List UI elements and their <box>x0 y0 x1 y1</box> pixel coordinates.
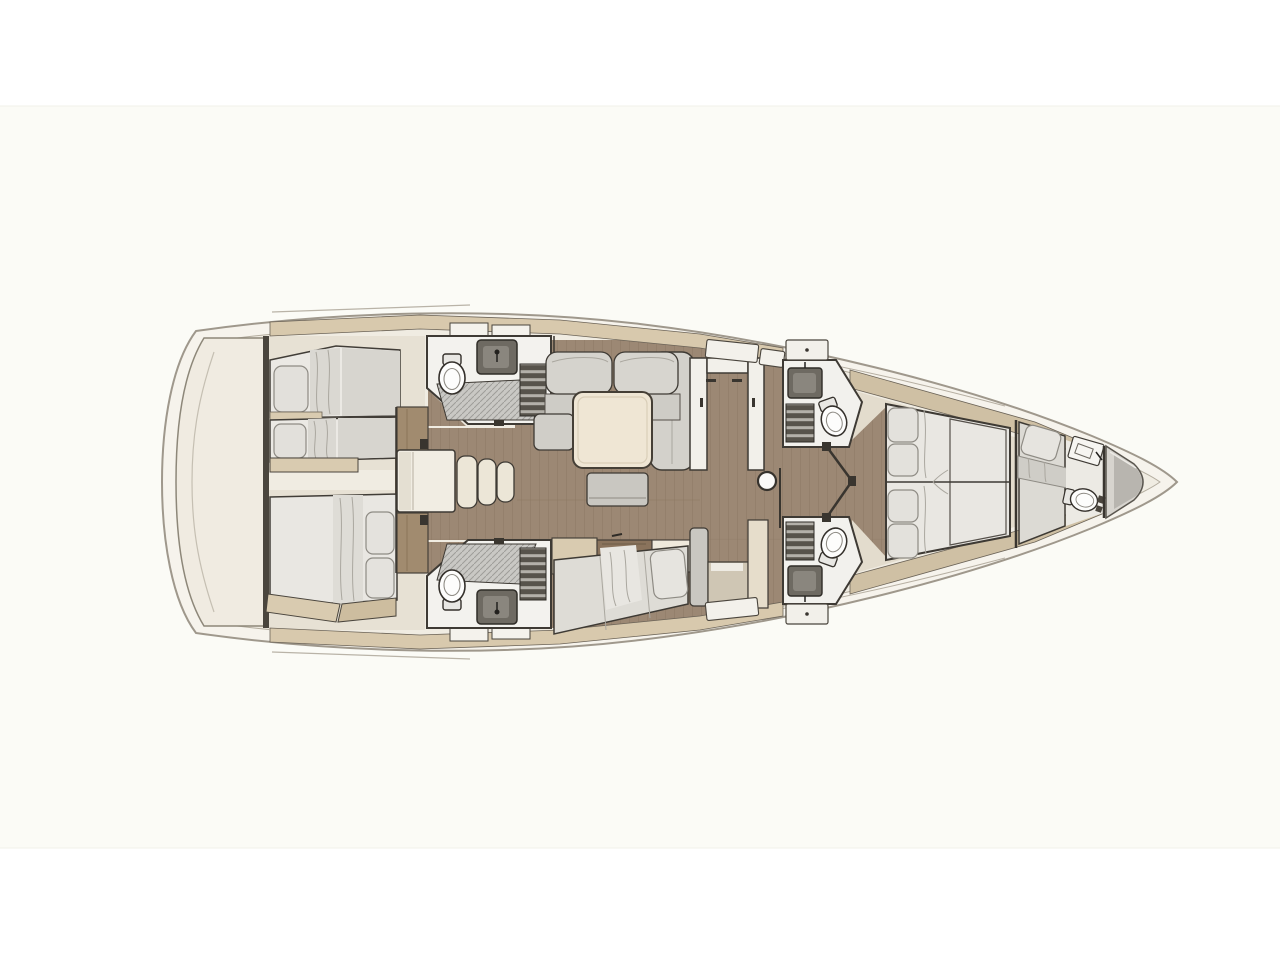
landing-shade <box>399 452 411 510</box>
galley-handle-4 <box>752 398 755 407</box>
companionway-step-3 <box>497 462 514 502</box>
floor-plan-page <box>0 0 1280 960</box>
owners-cabin <box>886 404 1016 560</box>
platform-surface <box>176 338 264 626</box>
door-hinge-bottom <box>822 513 831 522</box>
transom-bulkhead <box>263 336 269 628</box>
door-hinge-top <box>822 442 831 451</box>
toilet-icon <box>439 570 465 610</box>
floor-plan-canvas <box>0 0 1280 960</box>
door-post-bottom <box>420 515 428 525</box>
berth-2-pillow <box>274 424 306 458</box>
toilet-icon <box>439 354 465 394</box>
sofa-end-seat <box>534 414 574 450</box>
berth-1-duvet <box>310 348 340 416</box>
salon-table <box>573 392 652 468</box>
berth-foot-shelf <box>270 458 358 472</box>
sink-bowl <box>483 346 509 368</box>
aft-head-starboard <box>427 538 551 628</box>
galley-handle-1 <box>706 379 716 382</box>
sink-bowl <box>793 571 816 591</box>
hanging-locker <box>690 528 708 606</box>
double-bed-pillow-1 <box>366 512 394 554</box>
owner-pillow-2 <box>888 444 918 476</box>
chart-counter-top <box>711 563 743 571</box>
berth-1-pillow <box>274 366 308 412</box>
double-bed-duvet <box>333 495 363 604</box>
settee-blanket <box>600 545 642 610</box>
galley-counter-left <box>690 358 707 470</box>
locker-knob <box>805 612 809 616</box>
settee-pillow <box>650 548 689 599</box>
slatted-locker <box>786 522 814 560</box>
galley-counter-right <box>748 358 764 470</box>
sofa-back-cushion-1 <box>546 352 612 394</box>
berth-1-foot <box>342 348 400 416</box>
tall-cabinet <box>748 520 768 608</box>
companionway-step-2 <box>478 459 496 505</box>
double-bed-pillow-2 <box>366 558 394 598</box>
sofa-back-cushion-2 <box>614 352 678 394</box>
galley-handle-3 <box>700 398 703 407</box>
sink-bowl <box>483 596 509 618</box>
slatted-locker <box>786 404 814 442</box>
berth-2-foot <box>338 418 400 459</box>
berth-2-duvet <box>308 418 336 461</box>
slatted-locker <box>520 364 546 416</box>
door-hardware <box>494 420 504 426</box>
deck-hatch-bottom-1 <box>450 627 488 641</box>
door-hardware <box>494 538 504 544</box>
sink-bowl <box>793 373 816 393</box>
door-post-top <box>420 439 428 449</box>
owner-pillow-1 <box>888 408 918 442</box>
aft-head-port <box>427 336 551 426</box>
companionway-step-1 <box>457 456 477 508</box>
galley-handle-2 <box>732 379 742 382</box>
locker-knob <box>805 348 809 352</box>
owner-pillow-4 <box>888 524 918 558</box>
slatted-locker <box>520 548 546 600</box>
owner-pillow-3 <box>888 490 918 522</box>
door-hinge-mid <box>848 476 856 486</box>
mast-post <box>758 472 776 490</box>
deck-hatch-top-1 <box>450 323 488 337</box>
salon-bench <box>587 473 648 506</box>
